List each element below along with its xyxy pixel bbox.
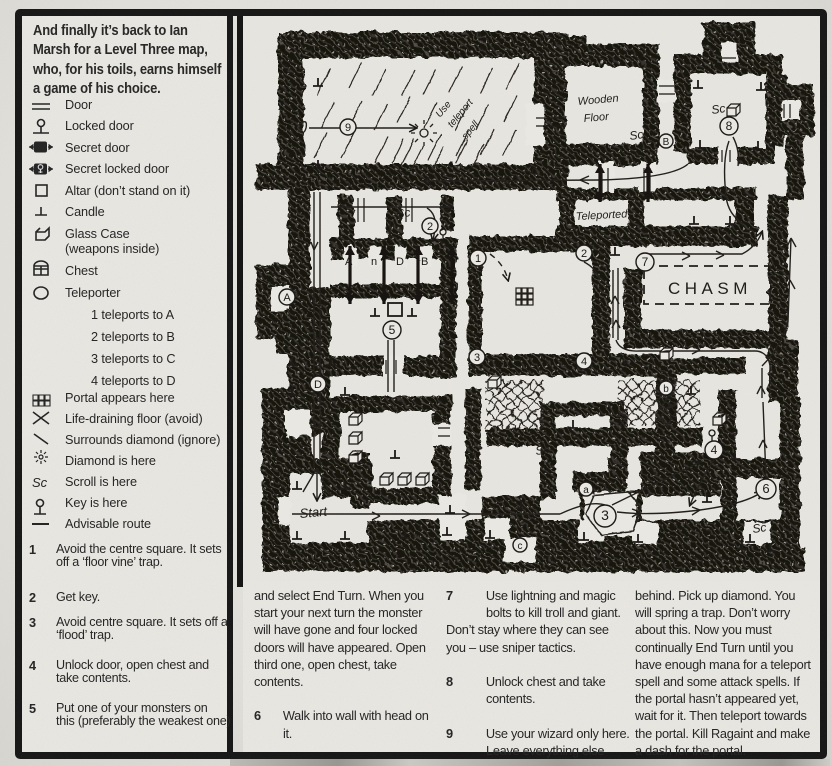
svg-text:n: n [371,256,377,268]
svg-text:a: a [583,485,589,496]
svg-text:Sc: Sc [395,205,411,221]
svg-text:3: 3 [601,507,609,523]
svg-text:D: D [314,379,322,391]
svg-text:B: B [421,256,428,268]
svg-text:5: 5 [389,323,396,337]
svg-text:A: A [283,292,291,304]
svg-text:Sc: Sc [522,163,538,179]
svg-text:b: b [663,384,669,395]
svg-text:7: 7 [642,255,649,269]
svg-text:4: 4 [581,356,587,368]
svg-text:D: D [396,256,404,268]
svg-text:4: 4 [711,443,718,457]
svg-text:B: B [663,137,670,148]
svg-text:Teleported: Teleported [576,208,629,223]
svg-text:Sc: Sc [534,442,550,458]
svg-text:6: 6 [762,481,769,496]
svg-text:2: 2 [427,221,433,233]
svg-text:CHASM: CHASM [668,279,752,298]
svg-text:Sc: Sc [628,127,644,143]
svg-text:Wooden: Wooden [577,92,619,108]
svg-text:1: 1 [475,253,481,265]
svg-text:Sc: Sc [751,520,767,536]
svg-text:3: 3 [474,352,480,364]
svg-text:8: 8 [726,119,733,133]
svg-text:Floor: Floor [583,111,610,125]
svg-text:Sc: Sc [710,101,726,117]
svg-text:A: A [345,256,353,268]
svg-text:Start: Start [299,504,329,521]
svg-text:c: c [518,541,523,552]
svg-text:spell: spell [460,119,482,142]
svg-text:2: 2 [581,248,587,260]
svg-text:9: 9 [345,122,351,134]
